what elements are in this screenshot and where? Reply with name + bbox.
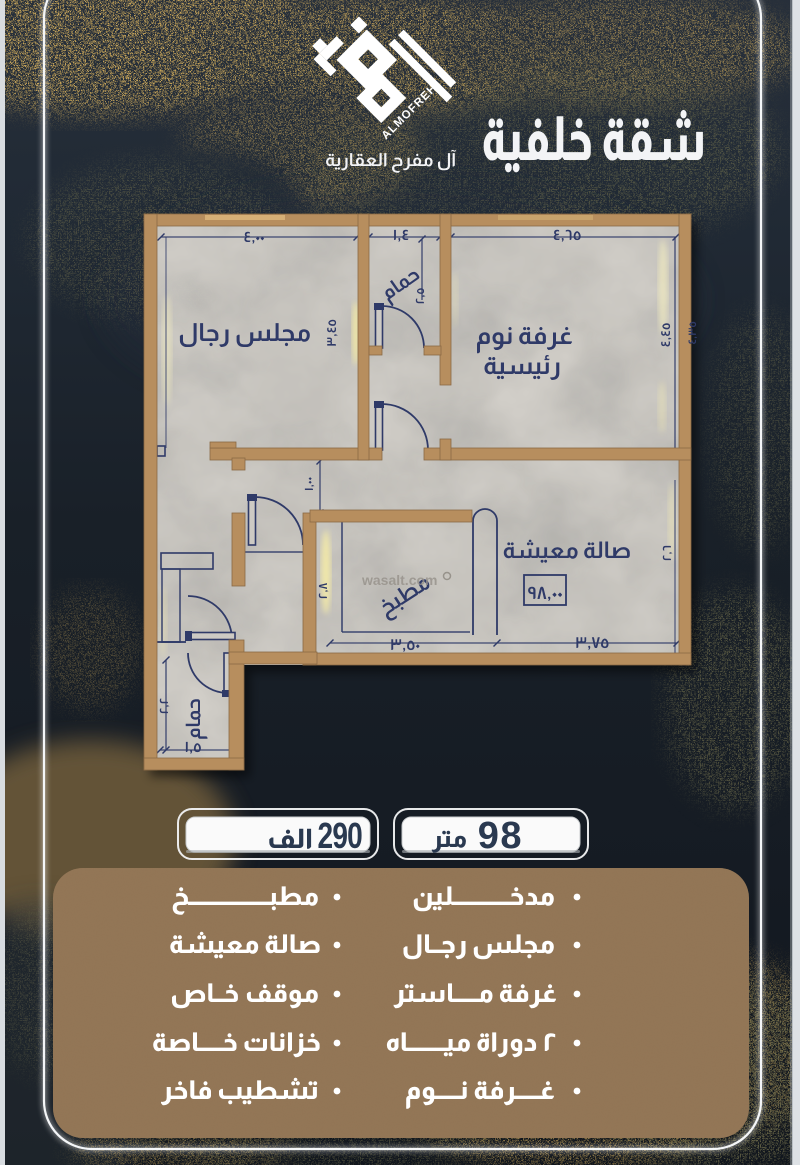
svg-text:98: 98 xyxy=(478,815,523,857)
svg-text:wasalt.com: wasalt.com xyxy=(361,572,437,588)
svg-text:290: 290 xyxy=(318,816,362,856)
